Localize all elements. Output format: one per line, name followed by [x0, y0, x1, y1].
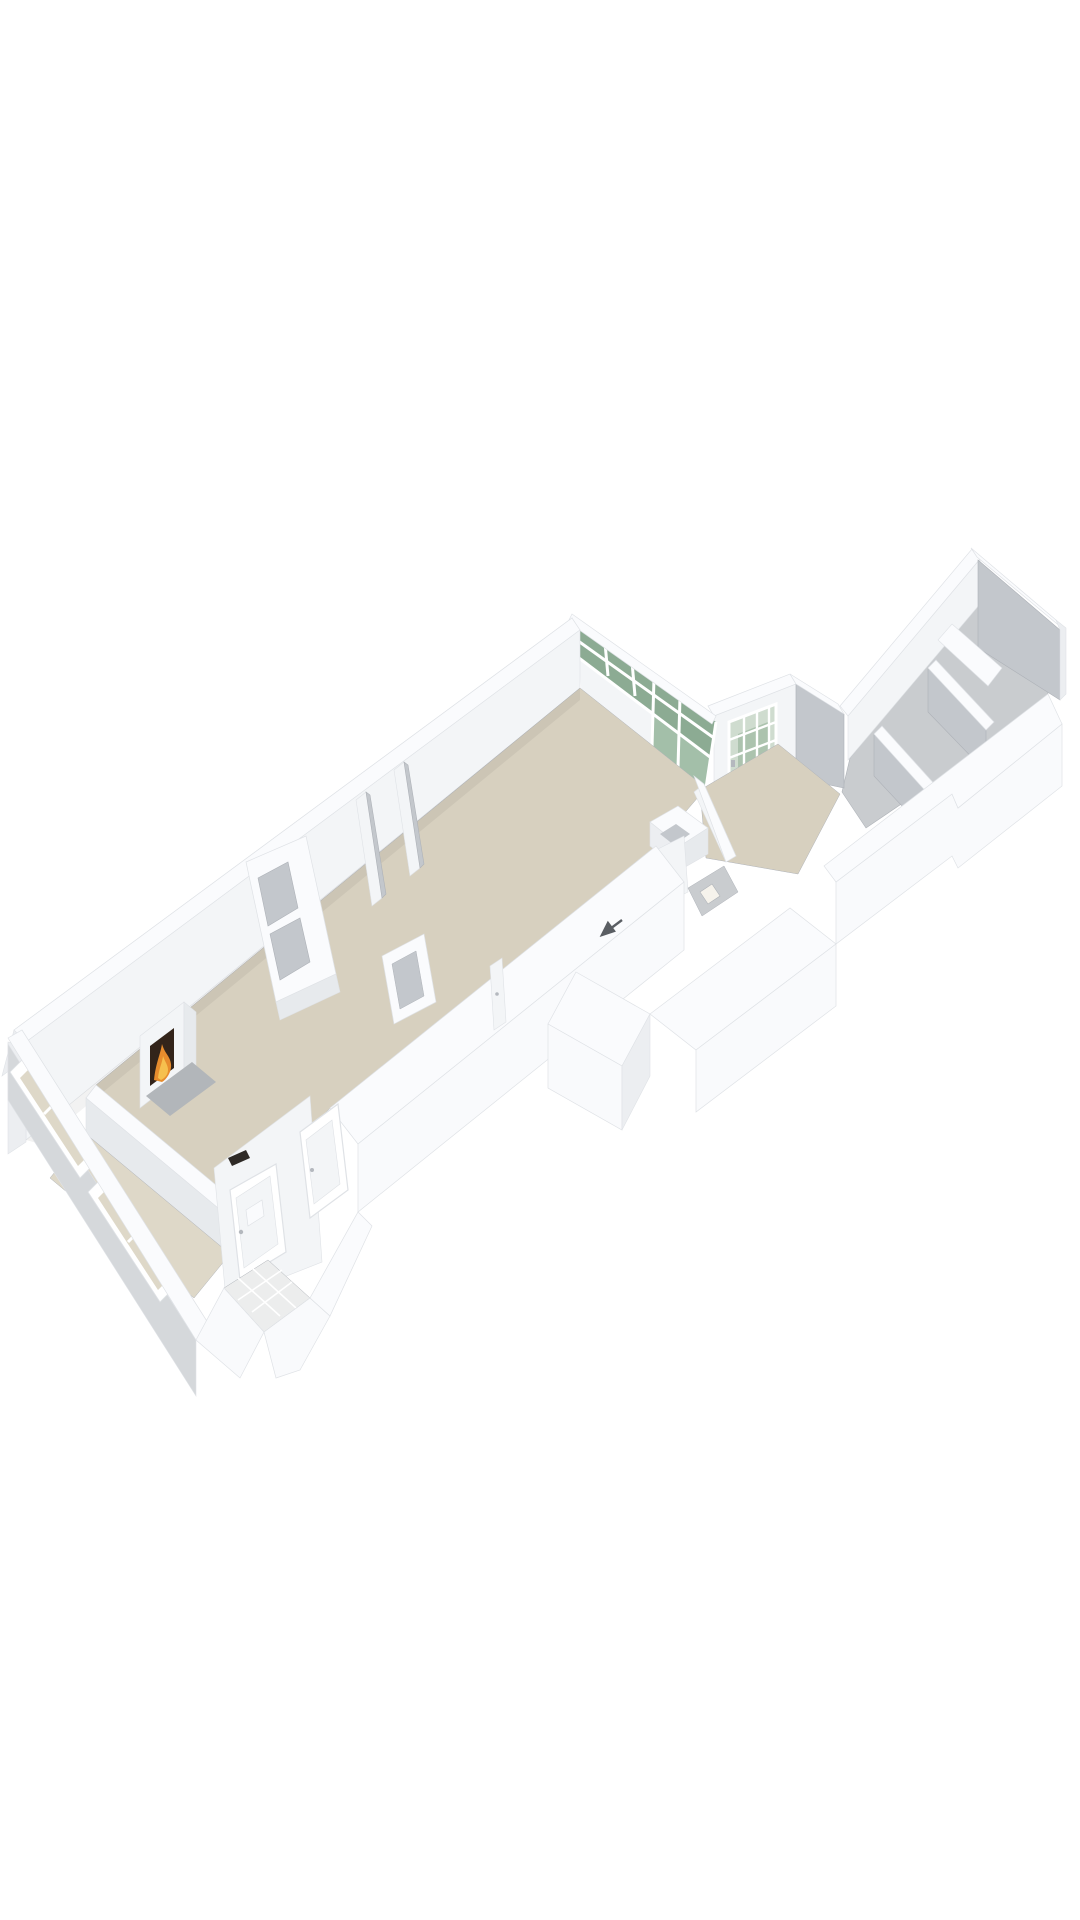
front-door-handle [239, 1230, 243, 1234]
shed-section [824, 548, 1066, 944]
floorplan-canvas [0, 0, 1080, 1920]
floorplan-3d-render [0, 0, 1080, 1920]
wc-niche [688, 866, 738, 916]
door-handle [731, 760, 735, 767]
interior-door-handle [495, 992, 499, 996]
